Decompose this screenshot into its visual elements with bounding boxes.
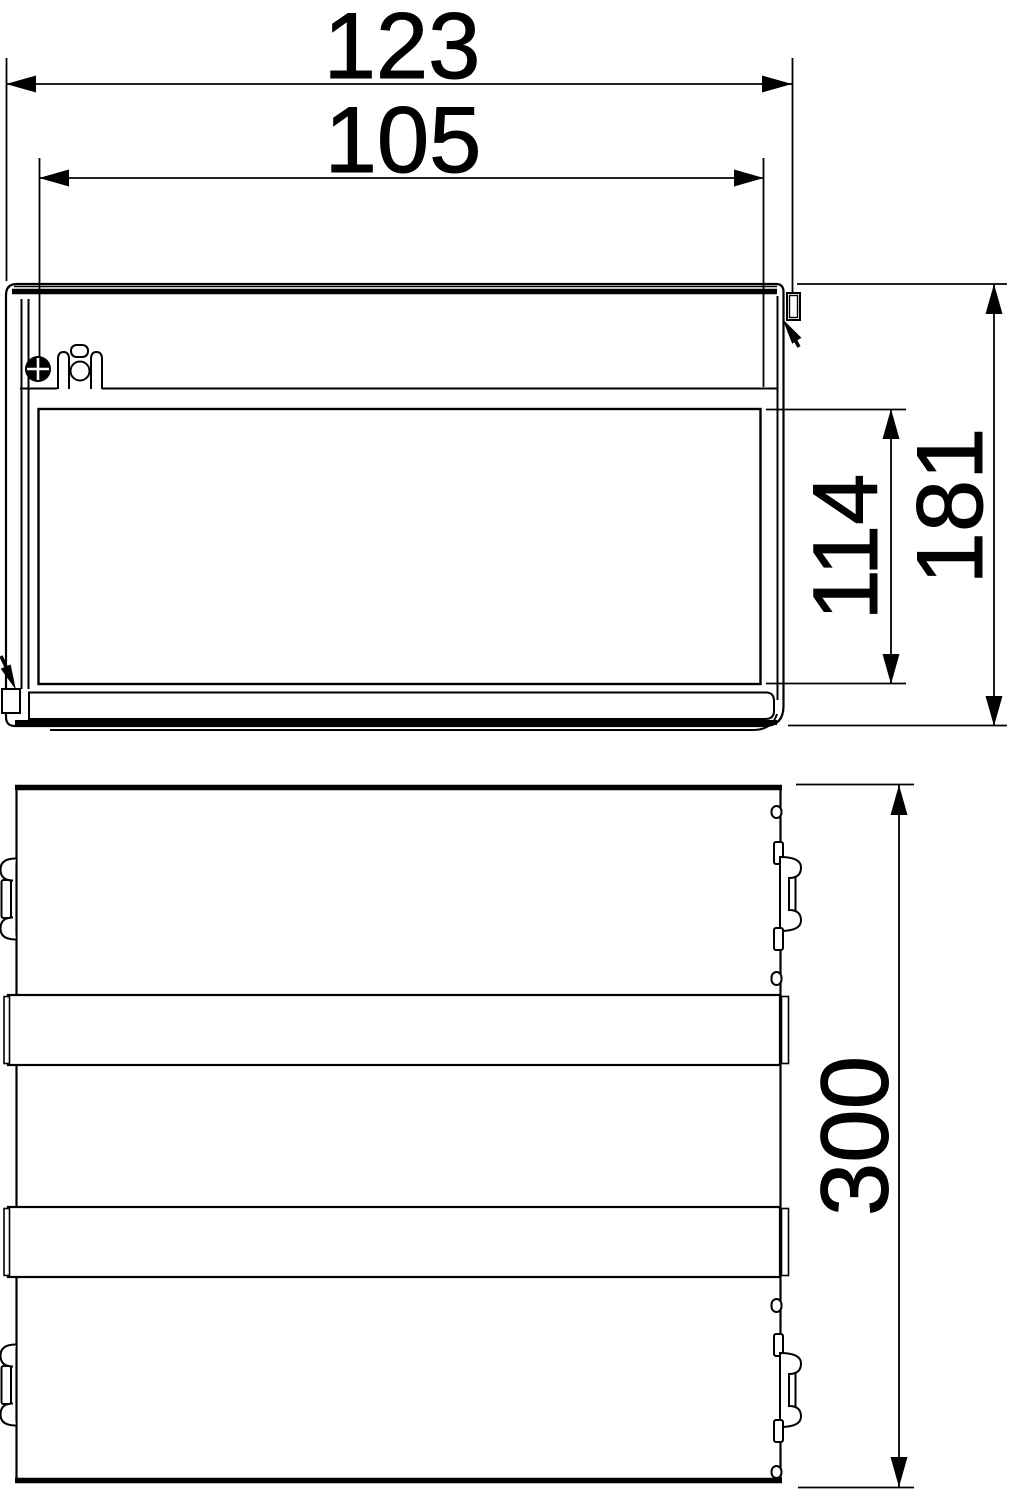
dimension-value: 181 (897, 428, 1002, 585)
arrowhead-right (762, 76, 792, 93)
left-clip-upper (1, 859, 17, 940)
bracket-right-bar (91, 352, 102, 389)
dimension-value: 300 (802, 1056, 909, 1216)
arrowhead-down (883, 654, 900, 684)
dimension-value: 114 (795, 474, 897, 621)
top-view-body (17, 787, 781, 1481)
hook-icon (772, 806, 782, 818)
bracket-hole (71, 362, 90, 381)
clip-bar (2, 1366, 12, 1404)
front-view (1, 284, 802, 730)
left-clip-lower (1, 1345, 17, 1426)
arrowhead-up (986, 284, 1003, 314)
bracket-left-bar (58, 352, 69, 389)
cover-strip-1 (4, 995, 789, 1065)
screw-head (25, 356, 51, 382)
dimension-value: 123 (324, 0, 481, 98)
cover-strip-endcap-left (4, 997, 10, 1064)
arrowhead-right (734, 170, 764, 187)
dimension-length: 300 (796, 785, 914, 1488)
arrowhead-down (891, 1457, 908, 1487)
bottom-rail (29, 693, 774, 720)
clip-bump-top (1, 859, 17, 881)
leader-arrowhead-top-right (783, 319, 802, 344)
arrowhead-left (39, 170, 69, 187)
dimension-inner-height: 114 (766, 409, 906, 684)
bracket-slot (71, 345, 88, 357)
hook-icon (772, 1466, 782, 1478)
cover-strip-endcap-right (782, 997, 789, 1064)
c-clip (780, 857, 801, 931)
top-view (1, 787, 802, 1481)
clip-bump-bottom (1, 1404, 17, 1426)
dimension-value: 105 (325, 87, 482, 192)
drawing-canvas: 123 105 114 181 300 (0, 0, 1009, 1500)
hook-icon (772, 972, 782, 985)
arrowhead-left (6, 76, 36, 93)
cover-strip-body (8, 995, 780, 1065)
arrowhead-up (891, 785, 908, 815)
hook-icon (772, 1299, 782, 1312)
cover-strip-endcap-left (4, 1209, 10, 1276)
c-clip (780, 1353, 801, 1427)
inner-panel (39, 409, 761, 684)
cover-strip-2 (4, 1207, 789, 1277)
cover-strip-body (8, 1207, 780, 1277)
clip-bump-bottom (1, 918, 17, 940)
arrowhead-down (986, 696, 1003, 726)
clip-bump-top (1, 1345, 17, 1367)
left-bottom-tab (2, 689, 20, 713)
clip-bar (2, 880, 12, 918)
technical-drawing-page: 123 105 114 181 300 (0, 0, 1009, 1500)
clip-tab (774, 928, 783, 950)
cover-strip-endcap-right (782, 1209, 789, 1276)
clip-tab (774, 1420, 783, 1442)
